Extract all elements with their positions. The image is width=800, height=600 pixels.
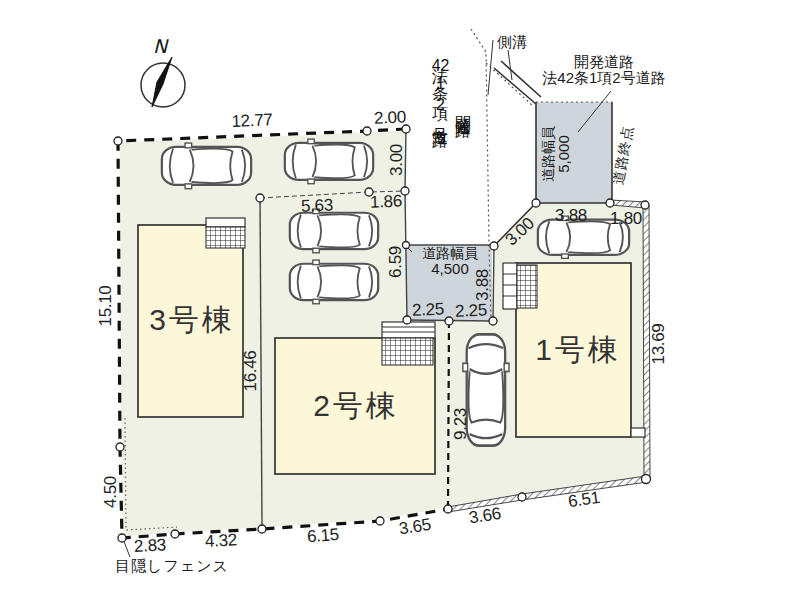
car-topview [162, 143, 251, 189]
car-topview [285, 139, 373, 184]
building2-balcony [382, 338, 433, 365]
dim-3-88-top: 3.88 [555, 207, 587, 225]
building3-porch [206, 218, 245, 227]
building3-balcony [206, 227, 245, 248]
site-plan: N 12.77 2.00 3.00 5.63 1.86 6.59 15.10 1… [0, 0, 800, 600]
dim-2-25-a: 2.25 [412, 301, 444, 320]
edge-388v [493, 246, 494, 321]
side-road-label-col2: 法42条1項2号道路 [429, 55, 450, 121]
privacy-fence-label: 目隠しフェンス [115, 558, 229, 574]
dim-16-46: 16.46 [242, 350, 260, 391]
dim-2-83: 2.83 [134, 536, 167, 555]
dev-road-line2: 法42条1項2号道路 [542, 70, 665, 86]
building1-balcony [517, 265, 537, 308]
side-road-label-col1: 開発道路 [452, 103, 473, 111]
gutter-label: 側溝 [497, 34, 527, 50]
dim-2-25-b: 2.25 [455, 302, 487, 321]
road-width-5000-label: 道路幅員 5,000 [541, 126, 571, 182]
road-width-4500-value: 4,500 [422, 260, 478, 276]
building-3-label: 3号棟 [149, 304, 235, 336]
dim-1-86: 1.86 [370, 193, 402, 212]
car-topview [290, 209, 378, 253]
side-road-col2-c: 条1項2号道路 [432, 73, 449, 121]
north-label: N [153, 37, 167, 57]
dim-6-59: 6.59 [387, 246, 405, 278]
dim-12-77: 12.77 [231, 111, 273, 130]
road-width-5000-value: 5,000 [555, 126, 571, 182]
dim-15-10: 15.10 [97, 285, 115, 326]
building-2-label: 2号棟 [313, 390, 399, 422]
road-width-4500-caption: 道路幅員 [422, 246, 478, 261]
dim-4-32: 4.32 [205, 531, 238, 550]
building1-step [631, 428, 645, 437]
dim-1-80: 1.80 [610, 210, 642, 228]
north-arrow [141, 57, 185, 107]
dev-road-label: 開発道路 法42条1項2号道路 [542, 54, 665, 86]
gutter-leader [488, 40, 493, 95]
dim-9-23: 9.23 [452, 408, 470, 440]
dim-4-50: 4.50 [102, 476, 120, 508]
dim-13-69: 13.69 [650, 323, 668, 364]
building-1-label: 1号棟 [535, 334, 621, 366]
dev-road-line1: 開発道路 [542, 54, 665, 70]
gutter-leader [508, 50, 512, 80]
dim-2-00: 2.00 [374, 109, 406, 128]
road-width-4500-label: 道路幅員 4,500 [422, 246, 478, 276]
site-plan-drawing [0, 0, 800, 600]
dim-5-63: 5.63 [301, 197, 333, 216]
dim-3-00-right: 3.00 [388, 144, 406, 176]
car-topview [290, 260, 378, 304]
dim-6-15: 6.15 [306, 526, 339, 546]
building1-porch [503, 263, 517, 309]
side-road-col2-b: 42 [432, 57, 449, 73]
road-width-5000-caption: 道路幅員 [541, 126, 556, 182]
